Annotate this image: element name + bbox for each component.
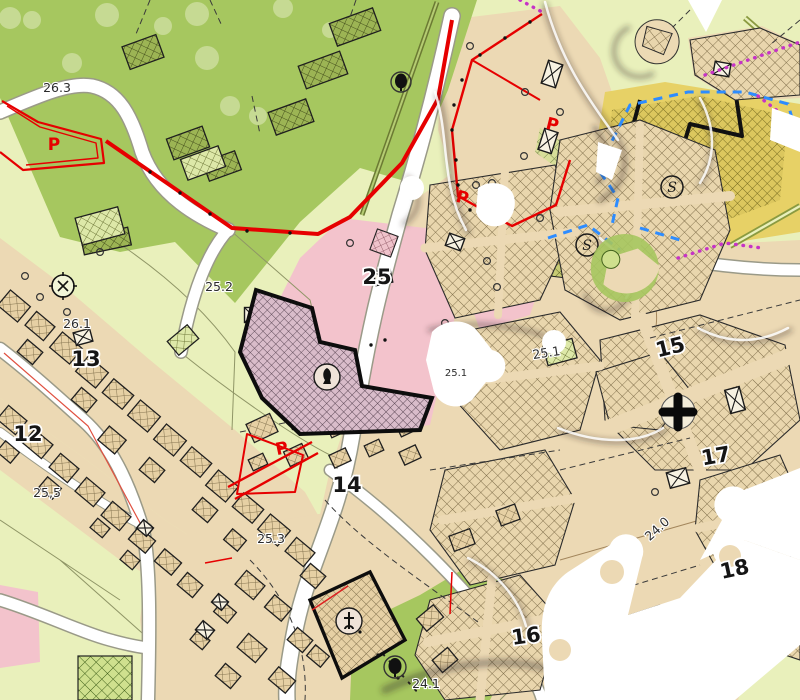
- label-area-25-5: 25,5: [33, 485, 61, 500]
- label-zone-14: 14: [332, 473, 361, 497]
- label-zone-16: 16: [510, 622, 542, 650]
- label-school-s1: S: [582, 238, 592, 254]
- label-area-26-1: 26.1: [63, 316, 91, 331]
- label-area-26-3: 26.3: [43, 80, 71, 95]
- map-canvas[interactable]: 26.3 25.2 26.1 13 12 25,5 25 25.3 14 25.…: [0, 0, 800, 700]
- label-school-s2: S: [667, 180, 677, 196]
- xbox-parcel-icon: [713, 61, 731, 77]
- label-zone-17: 17: [699, 442, 732, 471]
- label-zone-13: 13: [71, 347, 100, 371]
- label-zone-25: 25: [362, 265, 391, 289]
- map-viewport: 26.3 25.2 26.1 13 12 25,5 25 25.3 14 25.…: [0, 0, 800, 700]
- label-area-24-1: 24.1: [412, 676, 440, 691]
- label-parking-p1: P: [48, 135, 60, 155]
- label-zone-12: 12: [13, 422, 42, 446]
- label-area-25-1b: 25.1: [445, 368, 467, 379]
- chapel-cross-icon: [661, 395, 695, 429]
- label-area-25-3: 25.3: [257, 531, 285, 546]
- label-area-25-2: 25.2: [205, 279, 233, 294]
